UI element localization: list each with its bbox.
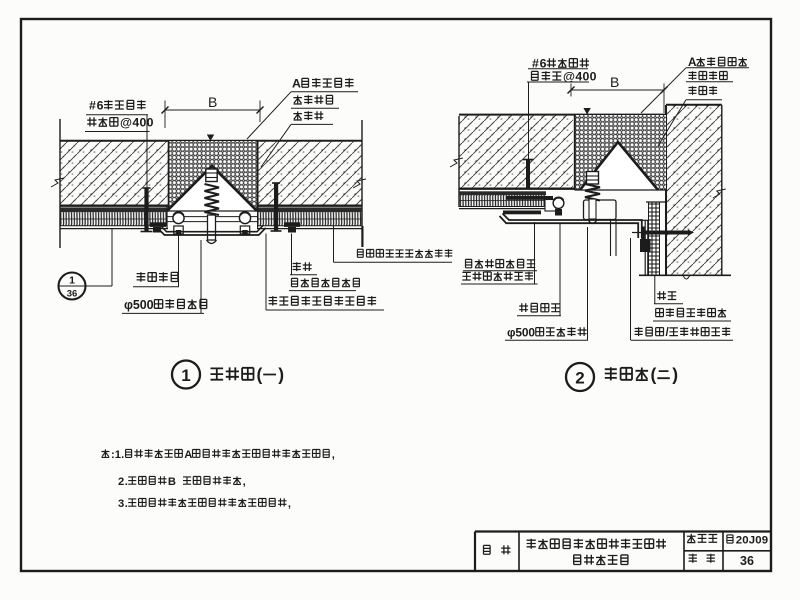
svg-text:36: 36 [740,554,754,568]
svg-text:A: A [292,77,301,91]
svg-text:20J09: 20J09 [736,535,768,547]
svg-text:A: A [688,55,697,69]
svg-text:B: B [168,476,176,488]
svg-text:36: 36 [67,289,78,300]
svg-text:φ500: φ500 [507,325,535,339]
svg-text:1: 1 [181,366,190,385]
svg-text:(: ( [651,365,657,385]
svg-text:B: B [610,74,619,90]
svg-text:3.: 3. [118,498,128,510]
svg-text:B: B [208,94,217,110]
svg-text:2.: 2. [118,476,128,488]
svg-text:2: 2 [575,369,584,388]
svg-text:(: ( [257,365,263,385]
svg-text:,: , [243,476,246,488]
svg-text:,: , [332,449,335,461]
svg-text:1: 1 [69,275,75,287]
svg-text::1.: :1. [111,449,124,461]
svg-text:): ) [672,365,678,385]
svg-text:φ500: φ500 [124,298,154,312]
svg-text:@400: @400 [120,116,154,130]
svg-text:A: A [184,449,192,461]
svg-text:): ) [278,365,284,385]
svg-text:#6: #6 [89,99,104,113]
svg-text:,: , [288,498,291,510]
